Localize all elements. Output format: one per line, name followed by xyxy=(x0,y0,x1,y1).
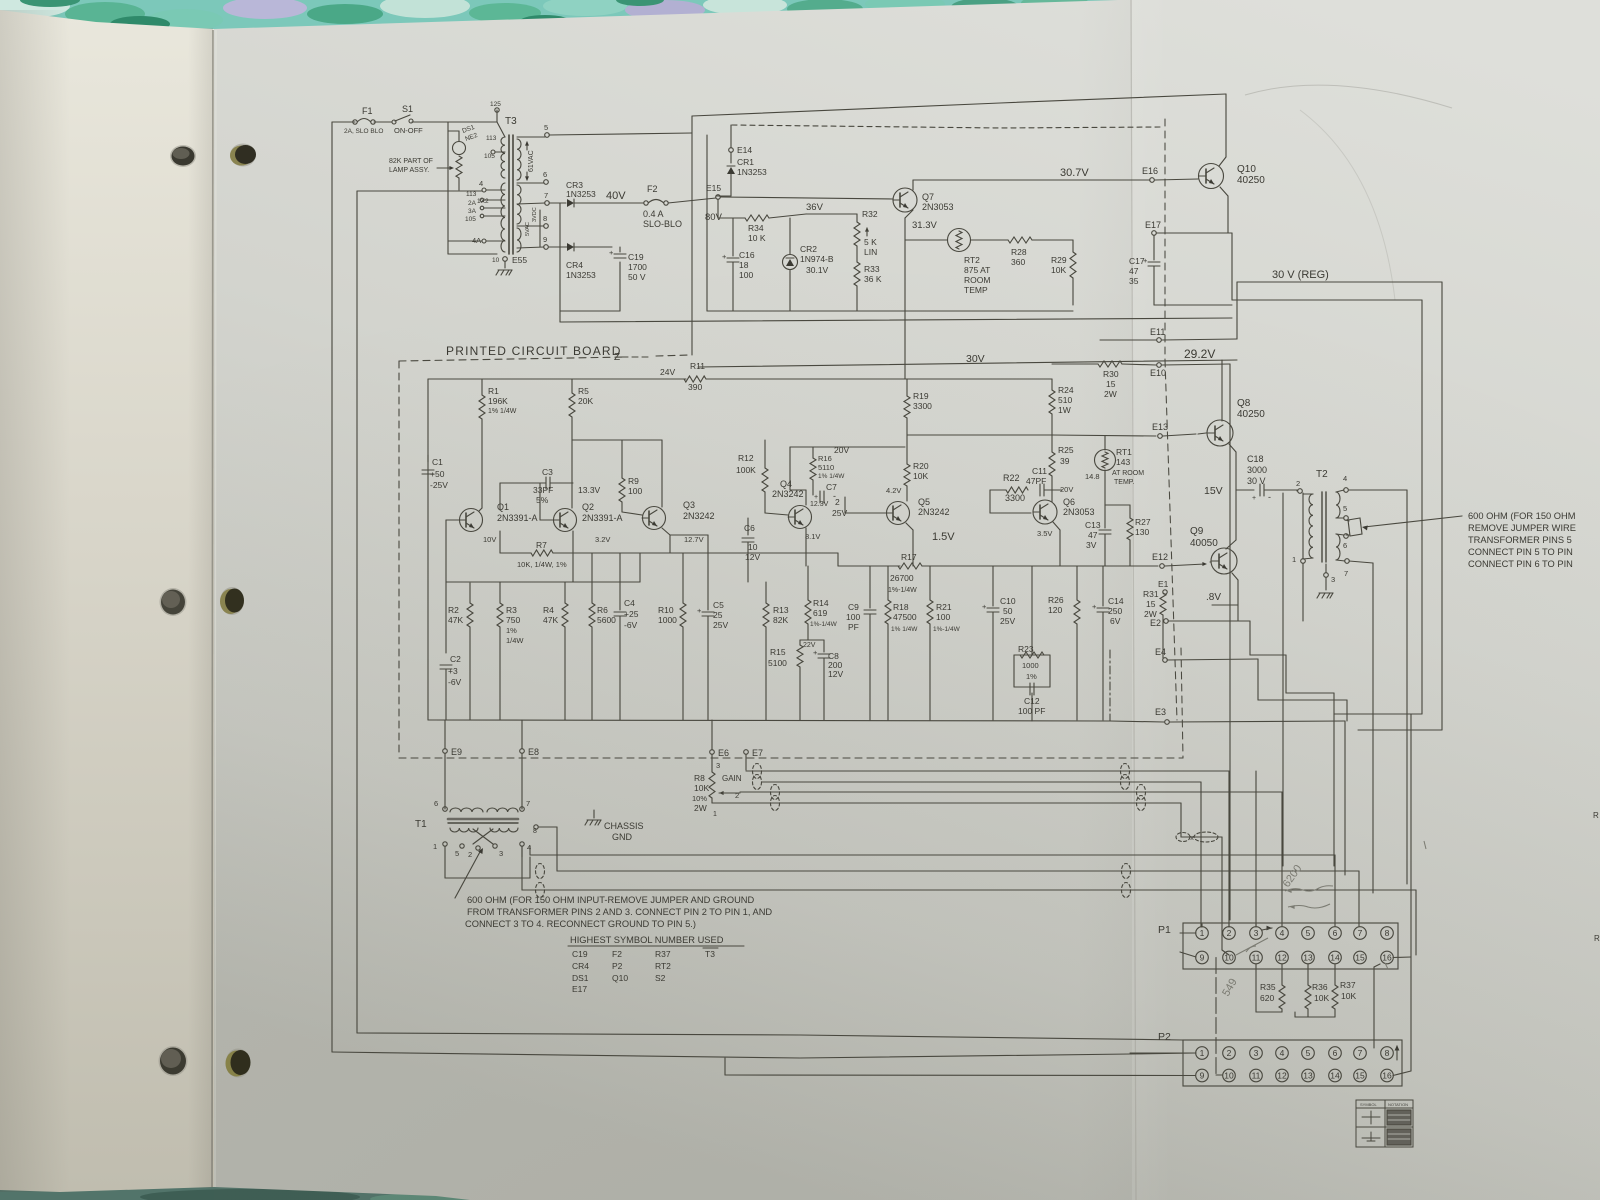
svg-text:PF: PF xyxy=(848,622,859,632)
svg-text:x: x xyxy=(1190,835,1194,842)
svg-text:P2: P2 xyxy=(1158,1031,1171,1043)
svg-text:R1: R1 xyxy=(488,386,499,396)
svg-text:-: - xyxy=(1268,492,1271,502)
svg-text:12V: 12V xyxy=(745,552,760,562)
svg-text:C5: C5 xyxy=(713,600,724,610)
svg-text:3: 3 xyxy=(1254,1048,1259,1058)
svg-text:15: 15 xyxy=(1146,599,1156,609)
svg-text:R15: R15 xyxy=(770,647,786,657)
svg-text:2N3053: 2N3053 xyxy=(922,202,954,212)
svg-text:CR4: CR4 xyxy=(566,260,583,270)
svg-text:125: 125 xyxy=(490,101,501,108)
svg-text:-6V: -6V xyxy=(448,677,462,687)
svg-text:30.7V: 30.7V xyxy=(1060,167,1089,179)
svg-text:40250: 40250 xyxy=(1237,175,1265,186)
svg-text:E1: E1 xyxy=(1158,579,1169,589)
svg-text:E6: E6 xyxy=(718,748,729,758)
svg-text:12.7V: 12.7V xyxy=(684,535,704,544)
svg-text:3300: 3300 xyxy=(1005,493,1025,503)
svg-text:196K: 196K xyxy=(488,396,508,406)
svg-text:R37: R37 xyxy=(1340,980,1356,990)
svg-text:100: 100 xyxy=(628,486,642,496)
svg-text:R10: R10 xyxy=(658,605,674,615)
svg-text:C16: C16 xyxy=(739,250,755,260)
svg-text:Q9: Q9 xyxy=(1190,526,1204,537)
svg-text:3VDC: 3VDC xyxy=(532,207,538,222)
svg-text:5: 5 xyxy=(1343,504,1347,513)
svg-text:E17: E17 xyxy=(1145,220,1161,230)
svg-text:1: 1 xyxy=(1200,928,1205,938)
svg-text:16: 16 xyxy=(1382,953,1392,963)
svg-text:R20: R20 xyxy=(913,461,929,471)
svg-text:1N3253: 1N3253 xyxy=(737,167,767,177)
svg-text:1/4W: 1/4W xyxy=(506,636,524,645)
svg-text:R28: R28 xyxy=(1011,247,1027,257)
svg-text:16: 16 xyxy=(1382,1071,1392,1081)
svg-text:35: 35 xyxy=(1129,276,1139,286)
svg-text:4.2V: 4.2V xyxy=(886,486,901,495)
svg-text:T2: T2 xyxy=(1316,469,1328,480)
svg-text:Q3: Q3 xyxy=(683,500,695,510)
svg-text:10: 10 xyxy=(748,542,758,552)
svg-text:100: 100 xyxy=(936,612,950,622)
svg-text:1N974-B: 1N974-B xyxy=(800,254,834,264)
svg-text:20K: 20K xyxy=(578,396,593,406)
svg-text:3: 3 xyxy=(1331,575,1335,584)
svg-text:RT2: RT2 xyxy=(964,255,980,265)
svg-text:+25: +25 xyxy=(624,609,639,619)
svg-text:9: 9 xyxy=(1200,953,1205,963)
svg-text:1%-1/4W: 1%-1/4W xyxy=(888,587,917,594)
svg-text:82K: 82K xyxy=(773,615,788,625)
svg-text:Q2: Q2 xyxy=(582,502,594,512)
svg-text:47: 47 xyxy=(1129,266,1139,276)
svg-text:R34: R34 xyxy=(748,223,764,233)
svg-text:6: 6 xyxy=(1333,1048,1338,1058)
svg-text:C19: C19 xyxy=(628,252,644,262)
svg-text:8: 8 xyxy=(543,214,547,223)
svg-text:9: 9 xyxy=(1200,1071,1205,1081)
svg-text:1%-1/4W: 1%-1/4W xyxy=(810,621,838,628)
svg-text:E17: E17 xyxy=(572,984,587,994)
svg-text:10K, 1/4W, 1%: 10K, 1/4W, 1% xyxy=(517,560,567,569)
svg-text:ROOM: ROOM xyxy=(964,275,990,285)
svg-text:GAIN: GAIN xyxy=(722,774,742,783)
svg-text:5600: 5600 xyxy=(597,615,616,625)
svg-text:R8: R8 xyxy=(694,773,705,783)
svg-text:R33: R33 xyxy=(864,264,880,274)
svg-text:P1: P1 xyxy=(1158,924,1171,936)
svg-text:1%-1/4W: 1%-1/4W xyxy=(933,626,961,633)
svg-text:R26: R26 xyxy=(1048,595,1064,605)
svg-text:36 K: 36 K xyxy=(864,274,882,284)
svg-text:510: 510 xyxy=(1058,395,1072,405)
svg-text:5%: 5% xyxy=(536,495,549,505)
svg-text:10K: 10K xyxy=(913,471,928,481)
svg-text:C3: C3 xyxy=(542,467,553,477)
svg-text:2N3053: 2N3053 xyxy=(1063,507,1095,517)
svg-text:1%: 1% xyxy=(1026,672,1037,681)
svg-text:+: + xyxy=(609,248,614,257)
svg-text:GND: GND xyxy=(612,832,633,842)
svg-text:CR2: CR2 xyxy=(800,244,817,254)
svg-text:R6: R6 xyxy=(597,605,608,615)
svg-text:8: 8 xyxy=(1385,928,1390,938)
svg-text:CR4: CR4 xyxy=(572,961,589,971)
svg-text:12: 12 xyxy=(1277,953,1287,963)
svg-text:P2: P2 xyxy=(612,961,623,971)
svg-text:E7: E7 xyxy=(752,748,763,758)
svg-text:1%: 1% xyxy=(506,626,517,635)
svg-text:1.5V: 1.5V xyxy=(932,531,955,543)
svg-text:875 AT: 875 AT xyxy=(964,265,990,275)
svg-text:100: 100 xyxy=(846,612,860,622)
svg-text:25: 25 xyxy=(713,610,723,620)
svg-text:R24: R24 xyxy=(1058,385,1074,395)
svg-text:LAMP ASSY.: LAMP ASSY. xyxy=(389,167,429,174)
svg-text:ON-OFF: ON-OFF xyxy=(394,126,423,135)
svg-text:13: 13 xyxy=(1303,1071,1313,1081)
svg-text:100K: 100K xyxy=(736,465,756,475)
svg-text:1N3253: 1N3253 xyxy=(566,189,596,199)
svg-text:SLO-BLO: SLO-BLO xyxy=(643,219,682,229)
svg-text:E13: E13 xyxy=(1152,422,1168,432)
svg-text:+: + xyxy=(1092,602,1097,611)
svg-text:R30: R30 xyxy=(1103,369,1119,379)
svg-text:R14: R14 xyxy=(813,598,829,608)
svg-text:E55: E55 xyxy=(512,255,527,265)
svg-text:RT2: RT2 xyxy=(655,961,671,971)
svg-text:12: 12 xyxy=(1277,1071,1287,1081)
svg-text:Q4: Q4 xyxy=(780,479,792,489)
svg-text:600 OHM (FOR 150 OHM: 600 OHM (FOR 150 OHM xyxy=(1468,511,1575,521)
svg-text:F2: F2 xyxy=(647,184,658,194)
svg-text:R21: R21 xyxy=(936,602,952,612)
svg-text:2: 2 xyxy=(735,791,739,800)
svg-text:130: 130 xyxy=(1135,527,1149,537)
svg-text:5: 5 xyxy=(455,849,459,858)
svg-text:T3: T3 xyxy=(705,949,715,959)
svg-text:2A, SLO BLO: 2A, SLO BLO xyxy=(344,128,383,135)
svg-text:2: 2 xyxy=(1296,479,1300,488)
svg-text:29.2V: 29.2V xyxy=(1184,347,1215,361)
svg-text:0.4 A: 0.4 A xyxy=(643,209,664,219)
svg-text:2N3242: 2N3242 xyxy=(683,511,715,521)
svg-text:Q10: Q10 xyxy=(612,973,628,983)
svg-text:E4: E4 xyxy=(1155,647,1166,657)
svg-text:+: + xyxy=(722,252,727,261)
svg-text:620: 620 xyxy=(1260,993,1274,1003)
svg-text:1000: 1000 xyxy=(658,615,677,625)
svg-text:R4: R4 xyxy=(543,605,554,615)
svg-text:C19: C19 xyxy=(572,949,588,959)
svg-text:1: 1 xyxy=(713,811,717,818)
svg-text:3: 3 xyxy=(499,849,503,858)
svg-text:E12: E12 xyxy=(1152,552,1168,562)
svg-text:14: 14 xyxy=(1330,953,1340,963)
svg-text:100: 100 xyxy=(739,270,753,280)
svg-text:6V: 6V xyxy=(1110,616,1121,626)
svg-text:10K: 10K xyxy=(1314,993,1329,1003)
svg-text:Q6: Q6 xyxy=(1063,497,1075,507)
svg-text:750: 750 xyxy=(506,615,520,625)
svg-text:2W: 2W xyxy=(694,803,707,813)
svg-text:600 OHM (FOR 150 OHM INPUT-REM: 600 OHM (FOR 150 OHM INPUT-REMOVE JUMPER… xyxy=(467,895,754,905)
svg-text:1% 1/4W: 1% 1/4W xyxy=(488,408,517,415)
svg-text:47K: 47K xyxy=(543,615,558,625)
svg-text:SYMBOL: SYMBOL xyxy=(1360,1102,1377,1107)
svg-text:143: 143 xyxy=(1116,457,1130,467)
svg-text:C18: C18 xyxy=(1247,454,1264,464)
svg-text:33PF: 33PF xyxy=(533,485,553,495)
svg-text:3300: 3300 xyxy=(913,401,932,411)
svg-text:6: 6 xyxy=(1333,928,1338,938)
svg-text:S1: S1 xyxy=(402,104,413,114)
svg-text:E9: E9 xyxy=(451,747,462,757)
svg-text:R35: R35 xyxy=(1260,982,1276,992)
svg-text:3.2V: 3.2V xyxy=(595,535,610,544)
svg-text:TEMP: TEMP xyxy=(964,285,988,295)
svg-text:5: 5 xyxy=(544,123,548,132)
svg-text:R32: R32 xyxy=(862,209,878,219)
svg-text:15: 15 xyxy=(1355,953,1365,963)
svg-text:6: 6 xyxy=(434,799,438,808)
svg-text:105: 105 xyxy=(465,216,476,223)
svg-text:30 V (REG): 30 V (REG) xyxy=(1272,269,1329,281)
svg-text:R7: R7 xyxy=(536,540,547,550)
svg-text:Q7: Q7 xyxy=(922,192,934,202)
svg-text:7: 7 xyxy=(1344,569,1348,578)
svg-text:12.3V: 12.3V xyxy=(810,501,829,508)
svg-text:+3: +3 xyxy=(448,666,458,676)
svg-text:8: 8 xyxy=(1385,1048,1390,1058)
svg-text:R19: R19 xyxy=(913,391,929,401)
svg-text:E11: E11 xyxy=(1150,327,1165,337)
svg-text:CR1: CR1 xyxy=(737,157,754,167)
svg-text:31.3V: 31.3V xyxy=(912,220,937,231)
svg-text:250: 250 xyxy=(1108,606,1122,616)
svg-text:R25: R25 xyxy=(1058,445,1074,455)
svg-text:4: 4 xyxy=(527,843,531,852)
svg-text:5 K: 5 K xyxy=(864,237,877,247)
svg-text:25V: 25V xyxy=(713,620,728,630)
svg-text:4: 4 xyxy=(1280,928,1285,938)
svg-text:C11: C11 xyxy=(1032,466,1047,476)
svg-text:-25V: -25V xyxy=(430,480,448,490)
svg-text:6: 6 xyxy=(1343,541,1347,550)
svg-text:2: 2 xyxy=(1227,928,1232,938)
svg-text:LIN: LIN xyxy=(864,247,877,257)
svg-text:Q8: Q8 xyxy=(1237,398,1251,409)
svg-text:R9: R9 xyxy=(628,476,639,486)
svg-text:25V: 25V xyxy=(1000,616,1015,626)
svg-text:40V: 40V xyxy=(606,190,626,202)
svg-text:E2: E2 xyxy=(1150,618,1161,628)
svg-text:E10: E10 xyxy=(1150,368,1166,378)
svg-text:CHASSIS: CHASSIS xyxy=(604,821,644,831)
svg-text:2N3391-A: 2N3391-A xyxy=(497,513,538,523)
svg-text:82K PART OF: 82K PART OF xyxy=(389,158,433,165)
svg-text:47K: 47K xyxy=(448,615,463,625)
svg-text:5VAC: 5VAC xyxy=(525,222,531,236)
svg-text:F1: F1 xyxy=(362,106,373,116)
svg-text:3000: 3000 xyxy=(1247,465,1267,475)
svg-text:6: 6 xyxy=(543,170,547,179)
svg-text:9: 9 xyxy=(543,235,547,244)
svg-text:26700: 26700 xyxy=(890,573,914,583)
svg-text:R22: R22 xyxy=(1003,473,1020,483)
svg-text:C10: C10 xyxy=(1000,596,1016,606)
svg-text:14.8: 14.8 xyxy=(1085,472,1100,481)
svg-text:S2: S2 xyxy=(655,973,666,983)
svg-text:30.1V: 30.1V xyxy=(806,265,829,275)
svg-text:Q1: Q1 xyxy=(497,502,509,512)
svg-text:3V: 3V xyxy=(1086,540,1097,550)
svg-text:DS1: DS1 xyxy=(572,973,589,983)
svg-text:-6V: -6V xyxy=(624,620,638,630)
svg-text:R31: R31 xyxy=(1143,589,1159,599)
svg-text:E3: E3 xyxy=(1155,707,1166,717)
svg-text:14: 14 xyxy=(1330,1071,1340,1081)
svg-text:T1: T1 xyxy=(415,819,427,830)
svg-text:E14: E14 xyxy=(737,145,752,155)
svg-text:+: + xyxy=(697,606,702,615)
svg-text:.8V: .8V xyxy=(1206,592,1221,603)
svg-text:36V: 36V xyxy=(806,202,824,213)
svg-text:8.1V: 8.1V xyxy=(805,532,820,541)
svg-text:C17: C17 xyxy=(1129,256,1145,266)
svg-text:4: 4 xyxy=(1280,1048,1285,1058)
svg-text:13: 13 xyxy=(1303,953,1313,963)
svg-text:T3: T3 xyxy=(505,116,517,127)
svg-text:1: 1 xyxy=(1200,1048,1205,1058)
svg-text:13.3V: 13.3V xyxy=(578,485,601,495)
svg-text:R11: R11 xyxy=(690,361,705,371)
svg-text:18: 18 xyxy=(739,260,749,270)
svg-text:TEMP.: TEMP. xyxy=(1114,479,1135,486)
svg-text:1% 1/4W: 1% 1/4W xyxy=(891,626,918,633)
svg-text:C1: C1 xyxy=(432,457,443,467)
svg-text:50 V: 50 V xyxy=(628,272,646,282)
svg-text:47: 47 xyxy=(1088,530,1098,540)
svg-text:R27: R27 xyxy=(1135,517,1151,527)
svg-text:3A: 3A xyxy=(468,208,477,215)
svg-text:61VAC: 61VAC xyxy=(528,150,535,172)
svg-text:3: 3 xyxy=(1254,928,1259,938)
svg-text:R: R xyxy=(1594,934,1600,943)
svg-text:10: 10 xyxy=(492,257,500,264)
svg-text:2N3391-A: 2N3391-A xyxy=(582,513,623,523)
svg-text:7: 7 xyxy=(1358,928,1363,938)
svg-text:C2: C2 xyxy=(450,654,461,664)
svg-text:R17: R17 xyxy=(901,552,917,562)
svg-text:+50: +50 xyxy=(430,469,445,479)
svg-text:15: 15 xyxy=(1355,1071,1365,1081)
svg-text:15: 15 xyxy=(1106,379,1116,389)
svg-text:C13: C13 xyxy=(1085,520,1101,530)
svg-text:47PF: 47PF xyxy=(1026,476,1046,486)
svg-text:+: + xyxy=(813,648,818,657)
svg-text:CONNECT PIN 5 TO PIN: CONNECT PIN 5 TO PIN xyxy=(1468,547,1573,557)
svg-text:Q5: Q5 xyxy=(918,497,930,507)
svg-text:E15: E15 xyxy=(706,183,721,193)
svg-text:40250: 40250 xyxy=(1237,409,1265,420)
svg-text:R5: R5 xyxy=(578,386,589,396)
svg-text:2A: 2A xyxy=(468,200,477,207)
svg-text:R: R xyxy=(1593,811,1599,820)
svg-text:11: 11 xyxy=(1252,1071,1261,1081)
svg-text:TRANSFORMER PINS 5: TRANSFORMER PINS 5 xyxy=(1468,535,1572,545)
svg-text:10: 10 xyxy=(1224,953,1234,963)
svg-text:R13: R13 xyxy=(773,605,789,615)
svg-text:10%: 10% xyxy=(692,794,707,803)
svg-text:47500: 47500 xyxy=(893,612,917,622)
svg-text:1N3253: 1N3253 xyxy=(566,270,596,280)
svg-text:+: + xyxy=(1252,495,1256,502)
svg-text:24V: 24V xyxy=(660,367,675,377)
svg-text:7: 7 xyxy=(544,191,548,200)
svg-text:7: 7 xyxy=(526,799,530,808)
svg-text:1% 1/4W: 1% 1/4W xyxy=(818,473,845,480)
svg-text:2: 2 xyxy=(835,497,840,507)
svg-text:E8: E8 xyxy=(528,747,539,757)
svg-text:2N3242: 2N3242 xyxy=(918,507,950,517)
svg-text:1: 1 xyxy=(433,842,437,851)
svg-text:PRINTED CIRCUIT BOARD: PRINTED CIRCUIT BOARD xyxy=(446,344,622,358)
svg-text:R3: R3 xyxy=(506,605,517,615)
svg-text:+: + xyxy=(814,494,818,501)
svg-text:5: 5 xyxy=(1306,928,1311,938)
svg-text:113: 113 xyxy=(486,135,497,142)
svg-text:REMOVE JUMPER WIRE: REMOVE JUMPER WIRE xyxy=(1468,523,1576,533)
svg-text:C14: C14 xyxy=(1108,596,1124,606)
svg-text:3.5V: 3.5V xyxy=(1037,529,1052,538)
svg-text:R18: R18 xyxy=(893,602,909,612)
svg-text:E16: E16 xyxy=(1142,166,1158,176)
svg-text:3: 3 xyxy=(716,761,720,770)
svg-text:F2: F2 xyxy=(612,949,622,959)
svg-text:1W: 1W xyxy=(1058,405,1071,415)
svg-text:R29: R29 xyxy=(1051,255,1067,265)
svg-text:FROM TRANSFORMER PINS 2 AND 3.: FROM TRANSFORMER PINS 2 AND 3. CONNECT P… xyxy=(467,907,772,917)
svg-text:C9: C9 xyxy=(848,602,859,612)
svg-text:AT ROOM: AT ROOM xyxy=(1112,470,1144,477)
svg-text:+: + xyxy=(982,602,987,611)
svg-text:10K: 10K xyxy=(1051,265,1066,275)
svg-text:11: 11 xyxy=(1252,953,1261,963)
svg-text:1000: 1000 xyxy=(1022,661,1039,670)
svg-text:20V: 20V xyxy=(1060,485,1073,494)
svg-text:HIGHEST SYMBOL NUMBER USED: HIGHEST SYMBOL NUMBER USED xyxy=(570,935,724,945)
svg-text:50: 50 xyxy=(1003,606,1013,616)
svg-text:R2: R2 xyxy=(448,605,459,615)
svg-text:2W: 2W xyxy=(1104,389,1117,399)
svg-text:10K: 10K xyxy=(694,783,709,793)
svg-text:40050: 40050 xyxy=(1190,538,1218,549)
svg-text:1700: 1700 xyxy=(628,262,647,272)
svg-text:360: 360 xyxy=(1011,257,1025,267)
svg-text:NOTATION: NOTATION xyxy=(1388,1102,1408,1107)
svg-text:1: 1 xyxy=(1292,555,1296,564)
svg-text:39: 39 xyxy=(1060,456,1070,466)
svg-text:113: 113 xyxy=(466,191,477,198)
svg-text:10V: 10V xyxy=(483,535,496,544)
svg-text:10K: 10K xyxy=(1341,991,1356,1001)
svg-text:2: 2 xyxy=(1227,1048,1232,1058)
svg-text:5110: 5110 xyxy=(818,463,834,472)
svg-text:CONNECT 3 TO 4. RECONNECT GROU: CONNECT 3 TO 4. RECONNECT GROUND TO PIN … xyxy=(465,919,696,929)
svg-text:390: 390 xyxy=(688,382,702,392)
